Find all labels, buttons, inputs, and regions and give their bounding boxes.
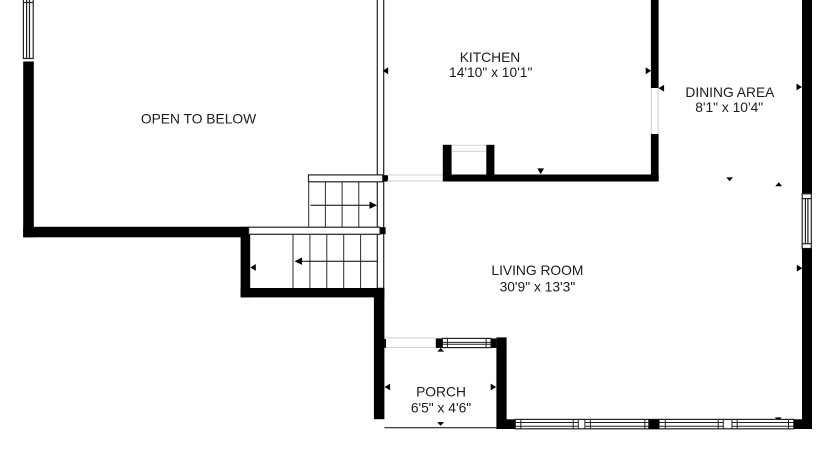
svg-text:LIVING ROOM: LIVING ROOM xyxy=(491,263,583,278)
svg-text:KITCHEN: KITCHEN xyxy=(460,50,521,65)
svg-text:8'1" x 10'4": 8'1" x 10'4" xyxy=(695,100,763,115)
svg-text:DINING AREA: DINING AREA xyxy=(685,85,775,100)
svg-text:PORCH: PORCH xyxy=(416,384,466,399)
svg-text:6'5" x 4'6": 6'5" x 4'6" xyxy=(411,400,471,415)
svg-text:30'9" x 13'3": 30'9" x 13'3" xyxy=(500,279,576,294)
svg-text:OPEN TO BELOW: OPEN TO BELOW xyxy=(141,112,256,127)
svg-text:14'10" x 10'1": 14'10" x 10'1" xyxy=(449,65,532,80)
